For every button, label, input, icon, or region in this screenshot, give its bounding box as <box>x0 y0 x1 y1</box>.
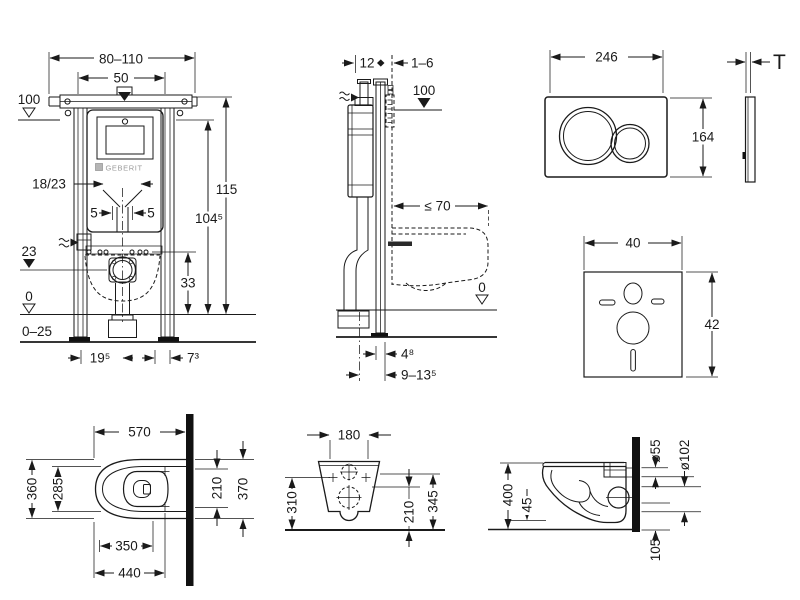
dim-label-12: 12 <box>359 56 374 71</box>
level-label-100-side: 100 <box>413 83 436 98</box>
dim-label-210-rear: 210 <box>402 501 417 524</box>
bowl-side-dashed <box>392 228 488 286</box>
installation-drawing: GEBERIT <box>0 0 800 600</box>
dim-label-246: 246 <box>595 50 618 65</box>
bowl-outer-rim <box>96 460 187 519</box>
frame-rails <box>65 108 183 343</box>
dim-label-104-5: 104⁵ <box>195 211 223 226</box>
dimension-mat-height: 42 <box>686 272 726 377</box>
level-label-100: 100 <box>18 92 41 107</box>
dim-label-285: 285 <box>51 478 66 501</box>
mat-drain-cutout <box>617 312 649 344</box>
dim-label-4-8: 4⁸ <box>401 347 414 362</box>
wall-section-bar-side <box>632 437 640 532</box>
dim-label-le-70: ≤ 70 <box>424 199 450 214</box>
dim-label-45: 45 <box>520 497 535 512</box>
dim-label-440: 440 <box>118 566 141 581</box>
dimension-115: 115 <box>196 97 241 314</box>
sound-mat <box>584 272 682 377</box>
level-marker-0-side: 0 <box>476 280 488 304</box>
dimension-350: 350 <box>100 521 154 554</box>
toilet-top-view: 570 360 285 350 440 <box>25 414 255 586</box>
dim-label-310: 310 <box>285 491 300 514</box>
dim-label-33: 33 <box>180 276 195 291</box>
flush-plate-profile: T <box>727 51 786 182</box>
dim-label-thickness: T <box>773 51 786 74</box>
water-supply-icon-side <box>340 92 360 102</box>
dim-label-9-13-5: 9–13⁵ <box>401 368 437 383</box>
frame-front-view: GEBERIT <box>18 50 256 366</box>
dimension-plate-height: 164 <box>670 98 719 177</box>
dim-label-5-left: 5 <box>90 206 98 221</box>
rear-connection-holes <box>329 464 371 511</box>
dimension-105: 105 <box>648 531 663 561</box>
dimension-inlet-diameter: ø55 <box>648 439 663 489</box>
flush-button-small <box>611 125 649 163</box>
frame-side-view: 12 1–6 100 ≤ 70 0 4⁸ <box>336 55 497 383</box>
cistern-side <box>348 98 373 198</box>
technical-drawing-sheet: GEBERIT <box>0 0 800 600</box>
dim-label-370-top: 370 <box>236 478 251 501</box>
dim-label-d102: ø102 <box>677 440 692 471</box>
flush-button-large <box>560 108 617 165</box>
level-label-0-side: 0 <box>478 280 486 295</box>
flush-plate-view: 246 164 T <box>545 50 786 183</box>
dim-label-105: 105 <box>648 539 663 562</box>
dimension-9-13-5: 9–13⁵ <box>346 312 437 383</box>
dimension-rail-spacing: 50 <box>78 70 165 94</box>
bowl-side-profile <box>542 463 632 523</box>
level-marker-23: 23 <box>20 244 107 270</box>
dim-label-5-right: 5 <box>147 206 155 221</box>
dimension-depth-12: 12 <box>342 55 385 73</box>
dim-label-345: 345 <box>426 490 441 513</box>
dimension-mat-width: 40 <box>584 236 682 271</box>
mat-pipe-cutout <box>624 283 642 304</box>
bowl-inner-rim <box>103 467 187 512</box>
mounting-bracket <box>86 246 162 254</box>
dim-label-40: 40 <box>625 236 640 251</box>
dimension-wall-gap: 1–6 <box>394 56 434 71</box>
bowl-opening <box>124 472 169 507</box>
level-label-0: 0 <box>25 289 33 304</box>
dim-label-rail-spacing: 50 <box>113 71 128 86</box>
dimension-370-top: 370 <box>195 441 254 537</box>
dim-label-115: 115 <box>216 182 238 197</box>
mat-slot-right <box>652 299 665 304</box>
dim-label-18-23: 18/23 <box>32 177 66 192</box>
bracket-bolts <box>87 250 148 254</box>
brand-logo-mark <box>96 164 103 171</box>
toilet-side-view: 400 45 ø55 ø102 105 <box>488 437 701 561</box>
dimension-outlet-diameter: ø102 <box>677 440 692 526</box>
flush-pipe-marker <box>118 92 131 101</box>
dimension-285: 285 <box>51 467 102 512</box>
dim-label-19-5: 19⁵ <box>90 351 111 366</box>
dimension-bowl-depth: ≤ 70 <box>394 198 489 226</box>
dimension-33: 33 <box>152 252 198 314</box>
dimension-plate-width: 246 <box>550 50 663 94</box>
range-label-0-25: 0–25 <box>22 324 52 339</box>
wall-section-bar <box>186 414 194 586</box>
sound-insulation-mat-view: 40 42 <box>584 236 726 378</box>
dimension-210-rear: 210 <box>372 469 420 547</box>
dim-label-400: 400 <box>501 484 516 507</box>
dimension-19-5: 19⁵ <box>68 350 133 366</box>
brand-logo-text: GEBERIT <box>106 164 143 173</box>
dim-label-360: 360 <box>25 478 40 501</box>
mat-slot-bottom <box>631 350 636 372</box>
level-label-23: 23 <box>21 244 36 259</box>
flush-plate-slot <box>386 86 394 128</box>
dimension-400: 400 <box>500 463 543 529</box>
dimension-180: 180 <box>307 428 391 460</box>
supply-pipe <box>360 82 368 105</box>
dim-label-350: 350 <box>115 539 138 554</box>
dimension-210-top: 210 <box>195 450 228 526</box>
dim-label-180: 180 <box>338 428 361 443</box>
dimension-7-3: 7³ <box>142 350 200 366</box>
flush-bend <box>338 197 369 328</box>
toilet-rear-view: 180 310 210 <box>285 428 446 548</box>
dim-label-width-range: 80–110 <box>99 52 143 67</box>
dim-label-7-3: 7³ <box>187 351 200 366</box>
flush-inlet-detail <box>134 481 151 498</box>
dim-label-570: 570 <box>128 425 151 440</box>
threaded-rod <box>388 242 412 247</box>
level-marker-100-side: 100 <box>394 83 442 110</box>
dimension-18-23: 18/23 <box>32 177 153 192</box>
dim-label-164: 164 <box>692 130 715 145</box>
mat-slot-left <box>600 300 616 305</box>
dim-label-1-6: 1–6 <box>411 56 434 71</box>
dim-label-42: 42 <box>704 317 719 332</box>
extension-lines-right <box>642 468 702 530</box>
dimension-570: 570 <box>94 424 185 458</box>
dim-label-210-top: 210 <box>210 477 225 500</box>
